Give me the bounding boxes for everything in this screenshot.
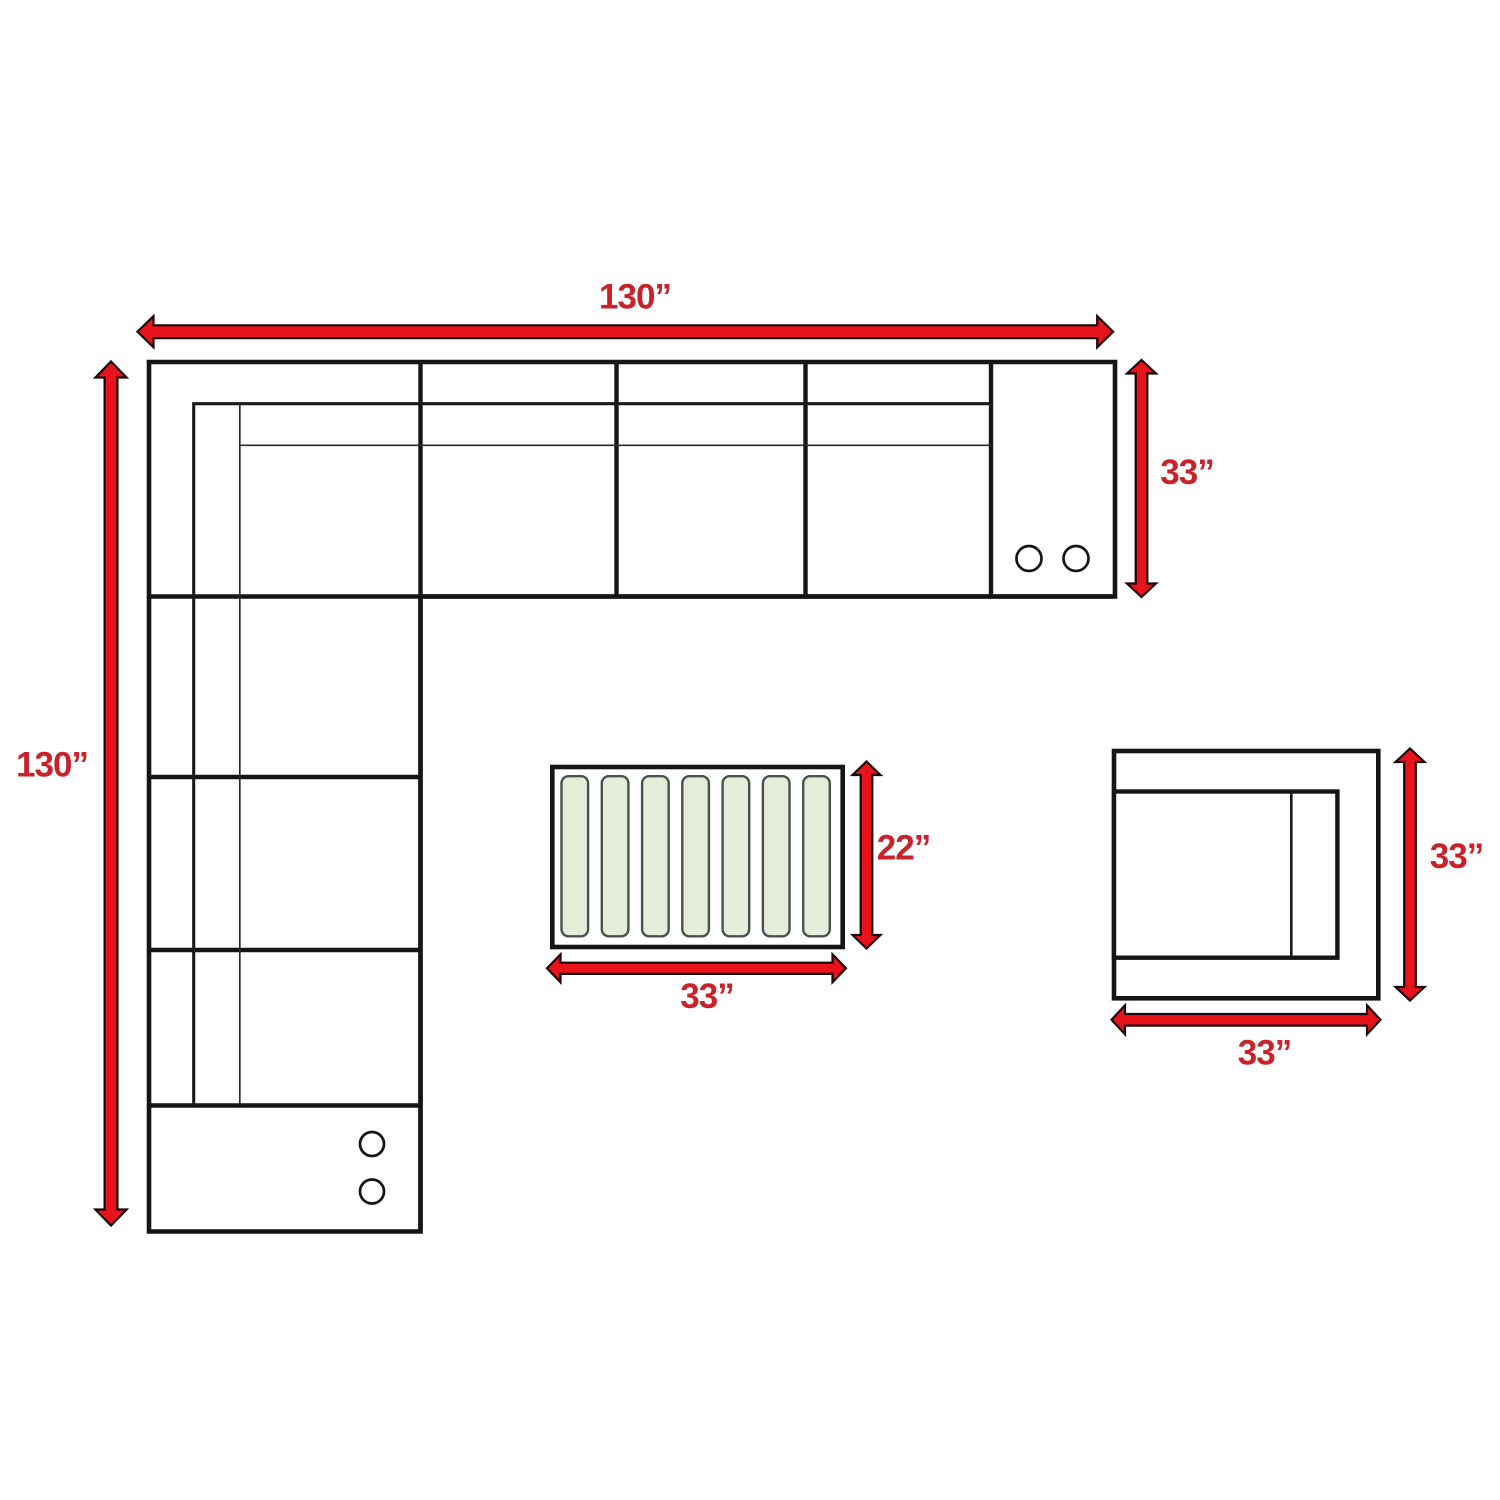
svg-text:33”: 33” [1160,453,1213,492]
svg-text:33”: 33” [1430,837,1483,876]
svg-text:22”: 22” [877,829,930,868]
svg-text:130”: 130” [16,745,88,784]
svg-text:130”: 130” [599,278,671,317]
svg-text:33”: 33” [680,977,733,1016]
svg-text:33”: 33” [1238,1034,1291,1073]
